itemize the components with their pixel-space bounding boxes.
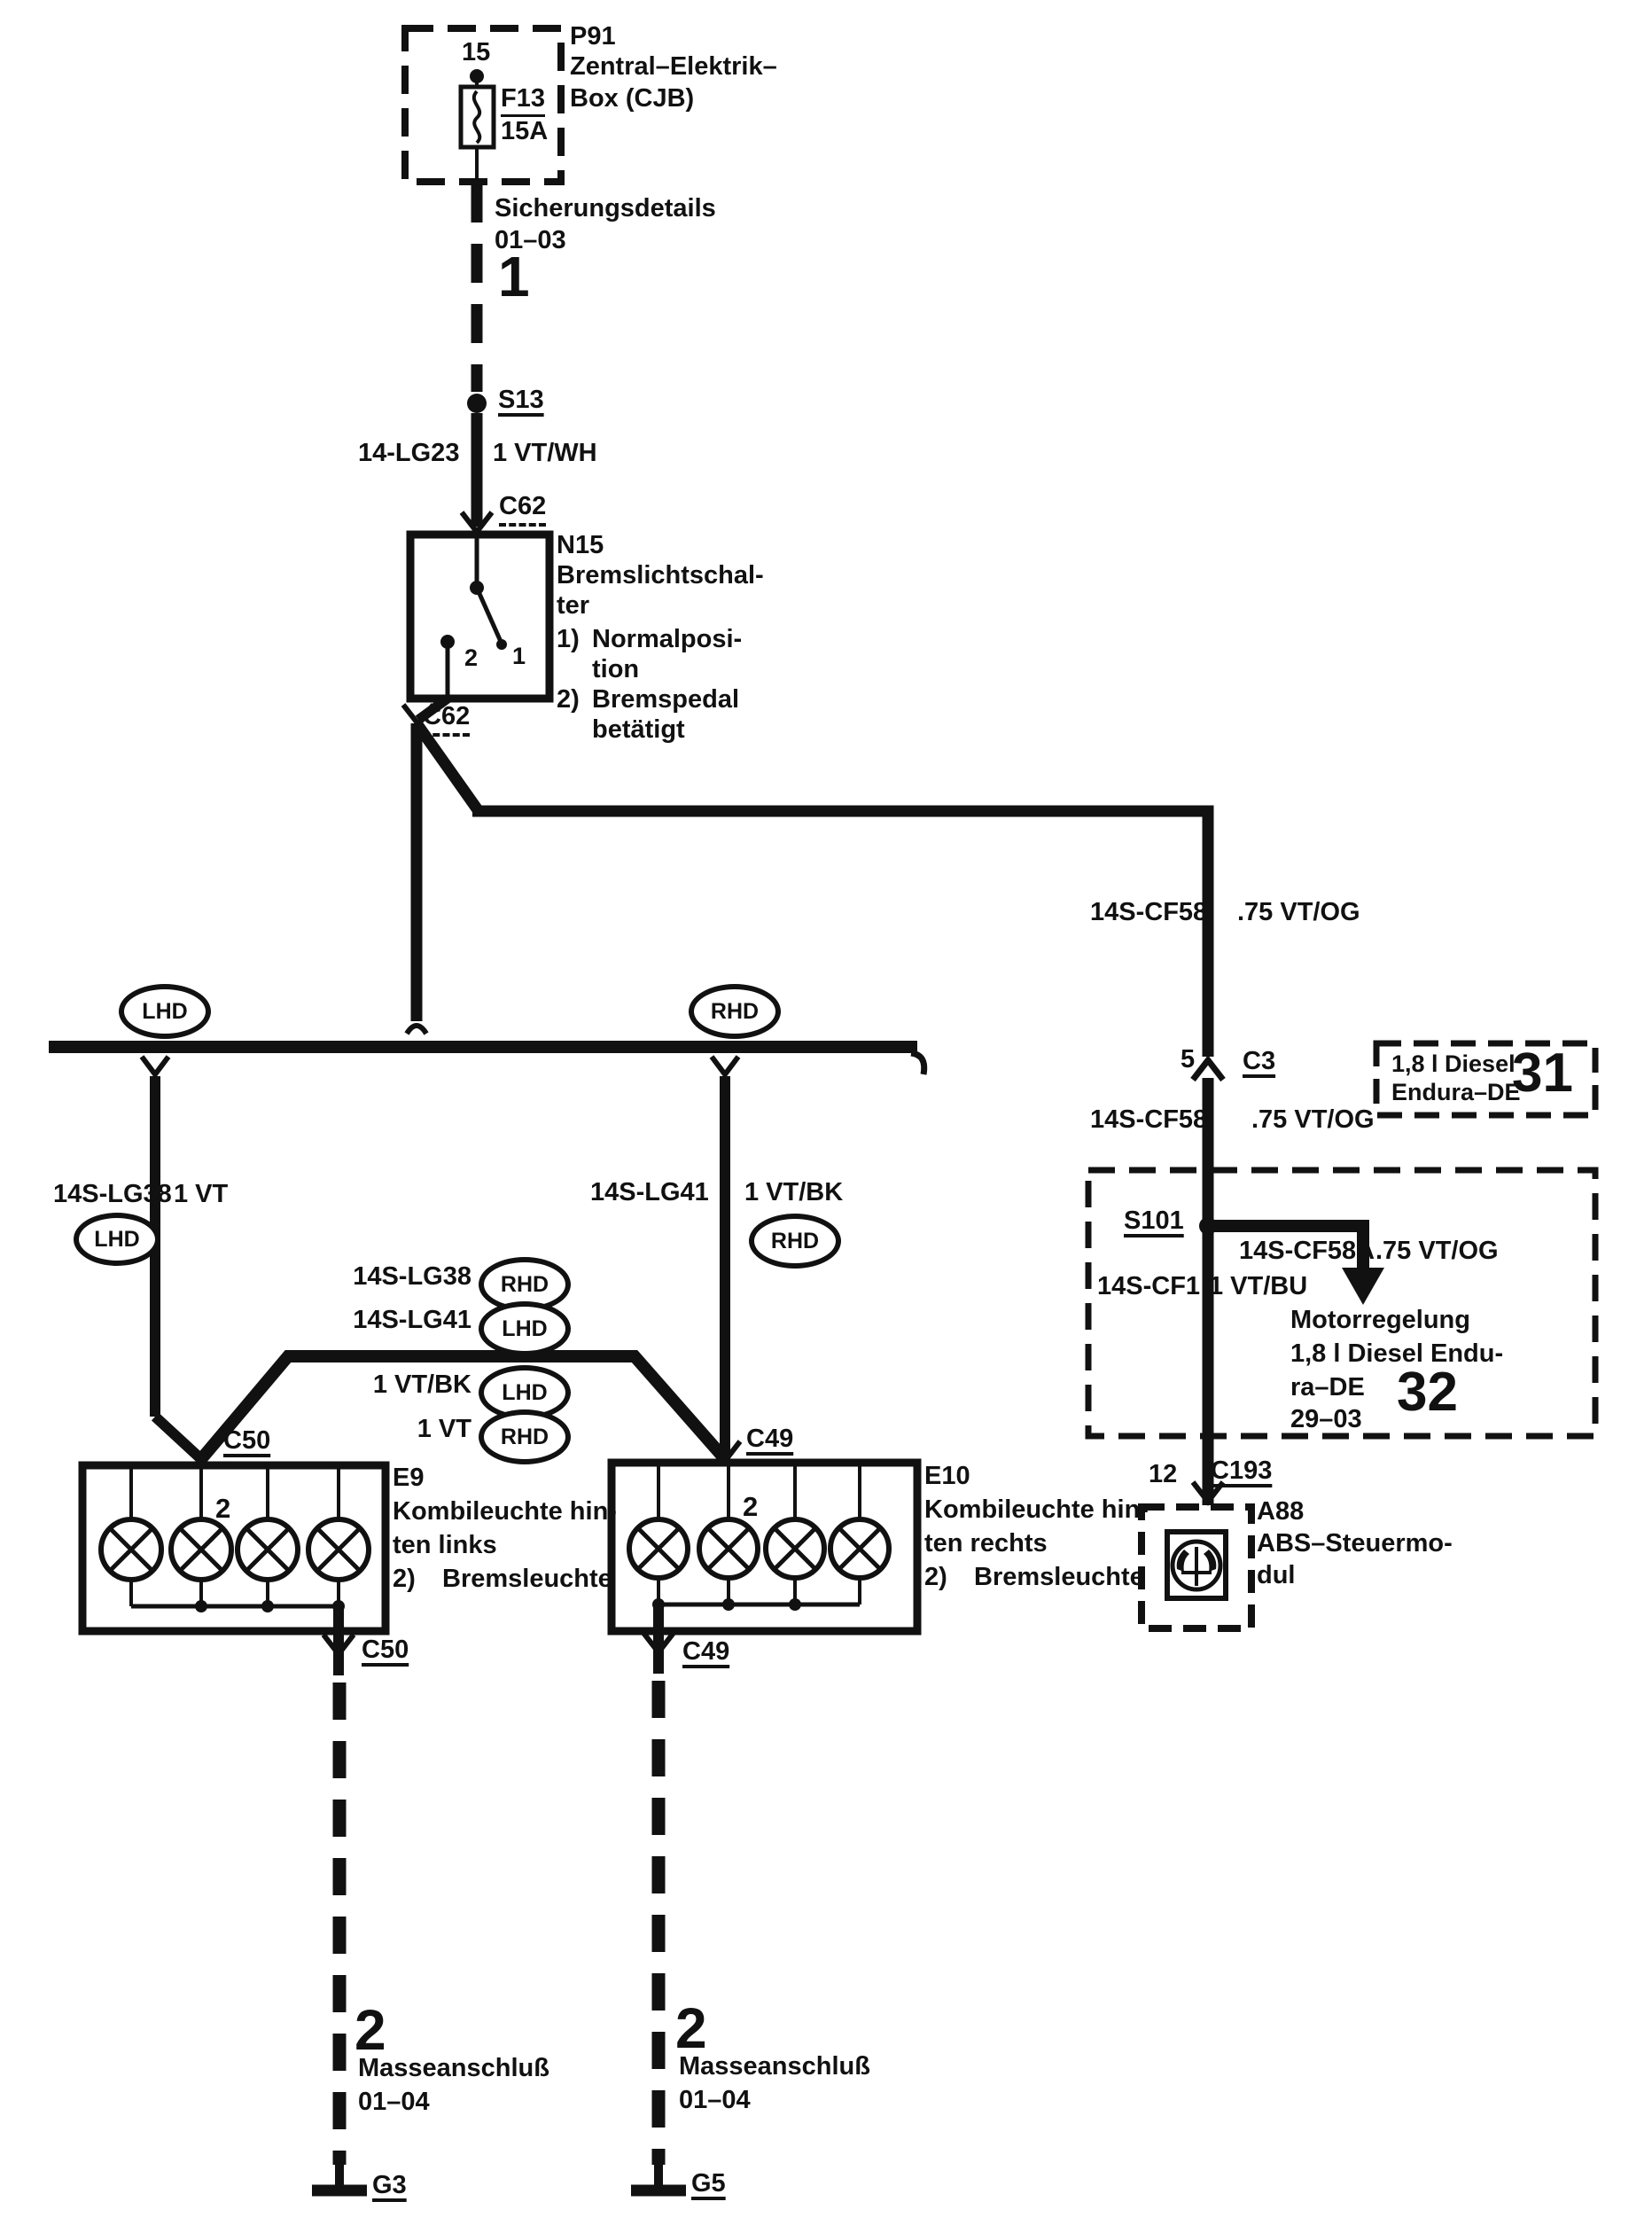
connector-c62-top-label: C62	[499, 493, 546, 519]
e9-id-label: E9	[393, 1464, 424, 1491]
wire-lg41-spec: 1 VT/BK	[744, 1179, 843, 1206]
crossover-row-label: 14S-LG41	[284, 1306, 471, 1335]
crossover-row-label: 1 VT/BK	[284, 1370, 471, 1400]
wire-switch-output	[407, 723, 1208, 1057]
wire-lg41-circuit: 14S-LG41	[590, 1179, 709, 1206]
fuse-details-label: Sicherungsdetails	[495, 195, 716, 222]
connector-c3-label: C3	[1243, 1048, 1275, 1074]
lamp-icon	[830, 1519, 889, 1578]
wire-e9-ground	[323, 1606, 354, 2165]
page-ref-32: 32	[1397, 1365, 1458, 1420]
wiring-diagram-canvas	[0, 0, 1652, 2233]
e9-lamp-pin: 2	[215, 1495, 230, 1524]
ground-icon	[312, 2165, 367, 2190]
crossover-row-label: 1 VT	[284, 1415, 471, 1444]
lamp-icon	[766, 1519, 824, 1578]
e10-fn-label: Bremsleuchte	[974, 1564, 1144, 1590]
connector-c62-bottom-label: C62	[423, 703, 470, 730]
e9-name-line1: Kombileuchte hin-	[393, 1498, 617, 1525]
ground-left-name: Masseanschluß	[358, 2055, 549, 2081]
lhd-badge: LHD	[119, 984, 211, 1039]
wire-right-stop-lamp	[712, 1057, 738, 1459]
diesel-box-line2: Endura–DE	[1391, 1080, 1521, 1105]
switch-id-label: N15	[557, 532, 604, 558]
cjb-name-line2: Box (CJB)	[570, 85, 694, 112]
connector-c50-top-label: C50	[223, 1427, 270, 1454]
switch-contact-1: 1	[512, 644, 526, 668]
switch-name-line2: ter	[557, 592, 589, 619]
cjb-id-label: P91	[570, 23, 616, 50]
rhd-badge: RHD	[479, 1409, 571, 1464]
e10-name-line2: ten rechts	[924, 1530, 1048, 1557]
ground-right-ref: 01–04	[679, 2087, 751, 2113]
wire-cf1-circuit: 14S-CF1	[1097, 1273, 1200, 1300]
wire-cf58-spec-2: .75 VT/OG	[1251, 1106, 1375, 1133]
e10-id-label: E10	[924, 1463, 970, 1489]
wire-cf1-spec: 1 VT/BU	[1209, 1273, 1307, 1300]
distribution-bus	[49, 1047, 924, 1074]
lamp-icon	[101, 1519, 161, 1580]
rhd-badge: RHD	[689, 984, 781, 1039]
ground-right-page-num: 2	[675, 2000, 707, 2057]
brake-switch-icon	[410, 535, 549, 699]
page-ref-1: 1	[498, 248, 530, 305]
switch-pos2-text2: betätigt	[592, 716, 685, 743]
wire-cf58-circuit-2: 14S-CF58	[1090, 1106, 1207, 1133]
wire-lg38-circuit: 14S-LG38	[53, 1181, 172, 1207]
engine-mgmt-line3: ra–DE	[1290, 1374, 1365, 1401]
lhd-badge: LHD	[479, 1301, 571, 1356]
wire-cf58-spec-1: .75 VT/OG	[1237, 899, 1360, 925]
ground-g5-label: G5	[691, 2170, 726, 2197]
fuse-rating-label: 15A	[501, 118, 548, 144]
lamp-icon	[308, 1519, 369, 1580]
wire-left-stop-lamp	[142, 1057, 201, 1459]
switch-pos1-text2: tion	[592, 656, 639, 683]
wire-feed-circuit: 14-LG23	[358, 440, 459, 466]
connector-c193-label: C193	[1211, 1457, 1272, 1484]
switch-pos1-text: Normalposi-	[592, 626, 742, 652]
switch-pos2-num: 2)	[557, 686, 580, 713]
switch-pos1-num: 1)	[557, 626, 580, 652]
page-ref-31: 31	[1512, 1046, 1573, 1101]
wire-cf58a-spec: .75 VT/OG	[1375, 1238, 1499, 1264]
ground-right-name: Masseanschluß	[679, 2053, 870, 2080]
abs-name-line1: ABS–Steuermo-	[1257, 1530, 1453, 1557]
wire-cf58-circuit-1: 14S-CF58	[1090, 899, 1207, 925]
wire-e10-ground	[643, 1604, 674, 2165]
wire-cf58a-circuit: 14S-CF58A	[1239, 1238, 1375, 1264]
abs-module-icon	[1142, 1507, 1251, 1628]
fuse-icon	[461, 69, 494, 182]
switch-name-line1: Bremslichtschal-	[557, 562, 764, 589]
lamp-icon	[629, 1519, 688, 1578]
splice-s13-dot	[467, 394, 487, 413]
fuse-id-label: F13	[501, 85, 545, 112]
ground-icon	[631, 2165, 686, 2190]
lamp-icon	[171, 1519, 231, 1580]
e9-fn-num: 2)	[393, 1565, 416, 1592]
fuse-pin-label: 15	[462, 39, 490, 66]
e9-fn-label: Bremsleuchte	[442, 1565, 612, 1592]
crossover-row-label: 14S-LG38	[284, 1262, 471, 1292]
engine-mgmt-line1: Motorregelung	[1290, 1307, 1470, 1333]
abs-id-label: A88	[1257, 1498, 1304, 1525]
e10-name-line1: Kombileuchte hin-	[924, 1496, 1149, 1523]
connector-c49-top-label: C49	[746, 1425, 793, 1452]
connector-c3-pin: 5	[1181, 1046, 1195, 1073]
ground-left-page-num: 2	[355, 2002, 386, 2058]
switch-contact-2: 2	[464, 645, 478, 670]
connector-arrow-icon	[1193, 1060, 1223, 1080]
cjb-name-line1: Zentral–Elektrik–	[570, 53, 777, 80]
connector-c50-bottom-label: C50	[362, 1636, 409, 1663]
lhd-badge: LHD	[74, 1213, 160, 1266]
rhd-badge: RHD	[749, 1214, 841, 1269]
connector-c193-pin: 12	[1149, 1461, 1177, 1487]
wire-lg38-spec: 1 VT	[174, 1181, 228, 1207]
connector-c49-bottom-label: C49	[682, 1638, 729, 1665]
lamp-icon	[238, 1519, 298, 1580]
ground-g3-label: G3	[372, 2172, 407, 2198]
wiring-diagram-page: 15 F13 15A P91 Zentral–Elektrik– Box (CJ…	[0, 0, 1652, 2233]
engine-mgmt-ref: 29–03	[1290, 1406, 1362, 1433]
wire-feed-spec: 1 VT/WH	[493, 440, 597, 466]
abs-name-line2: dul	[1257, 1562, 1296, 1589]
diesel-box-line1: 1,8 l Diesel	[1391, 1051, 1516, 1076]
splice-s13-label: S13	[498, 386, 544, 413]
ground-left-ref: 01–04	[358, 2089, 430, 2115]
lamp-assembly-e9	[82, 1465, 386, 1631]
switch-pos2-text: Bremspedal	[592, 686, 739, 713]
e10-fn-num: 2)	[924, 1564, 947, 1590]
e10-lamp-pin: 2	[743, 1493, 758, 1522]
lamp-icon	[699, 1519, 758, 1578]
splice-s101-label: S101	[1124, 1207, 1184, 1234]
e9-name-line2: ten links	[393, 1532, 497, 1558]
